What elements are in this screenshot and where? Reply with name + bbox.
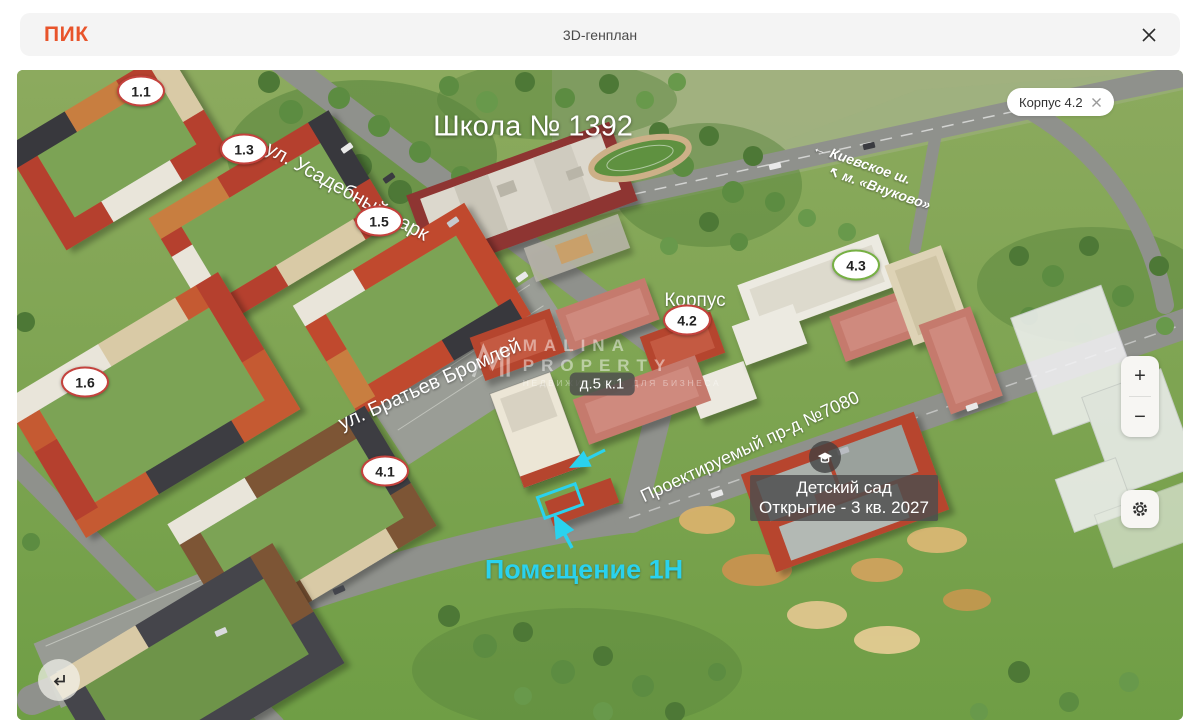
- kindergarten-opening: Открытие - 3 кв. 2027: [759, 498, 929, 518]
- settings-button[interactable]: [1121, 490, 1159, 528]
- kindergarten-pin[interactable]: [809, 441, 841, 473]
- filter-chip-korpus-4-2[interactable]: Корпус 4.2: [1007, 88, 1114, 116]
- premises-label-1n: Помещение 1Н: [485, 555, 683, 586]
- zoom-control: + −: [1121, 356, 1159, 437]
- building-badge-1-3[interactable]: 1.3: [220, 134, 268, 165]
- chip-close-icon[interactable]: [1091, 97, 1102, 108]
- building-badge-1-6[interactable]: 1.6: [61, 367, 109, 398]
- close-icon: [1140, 26, 1158, 44]
- gear-icon: [1129, 498, 1151, 520]
- return-icon: [49, 670, 69, 690]
- page-title: 3D-генплан: [563, 27, 637, 43]
- kindergarten-tooltip: Детский сад Открытие - 3 кв. 2027: [750, 475, 938, 521]
- pik-logo: ПИК: [44, 23, 89, 47]
- building-badge-4-3[interactable]: 4.3: [832, 250, 880, 281]
- filter-chip-label: Корпус 4.2: [1019, 95, 1083, 110]
- building-badge-4-1[interactable]: 4.1: [361, 456, 409, 487]
- education-icon: [816, 450, 834, 465]
- building-badge-1-5[interactable]: 1.5: [355, 206, 403, 237]
- school-label: Школа № 1392: [433, 111, 633, 144]
- kindergarten-name: Детский сад: [759, 478, 929, 498]
- building-badge-1-1[interactable]: 1.1: [117, 76, 165, 107]
- back-button[interactable]: [38, 659, 80, 701]
- map-3d-viewport[interactable]: MALINA PROPERTY НЕДВИЖИМОСТЬ ДЛЯ БИЗНЕСА…: [17, 70, 1183, 720]
- header-bar: ПИК 3D-генплан: [20, 13, 1180, 56]
- building-badge-4-2[interactable]: 4.2: [663, 305, 711, 336]
- zoom-out-button[interactable]: −: [1121, 397, 1159, 437]
- close-button[interactable]: [1134, 20, 1164, 50]
- house-label-d5k1: д.5 к.1: [570, 373, 635, 396]
- zoom-in-button[interactable]: +: [1121, 356, 1159, 396]
